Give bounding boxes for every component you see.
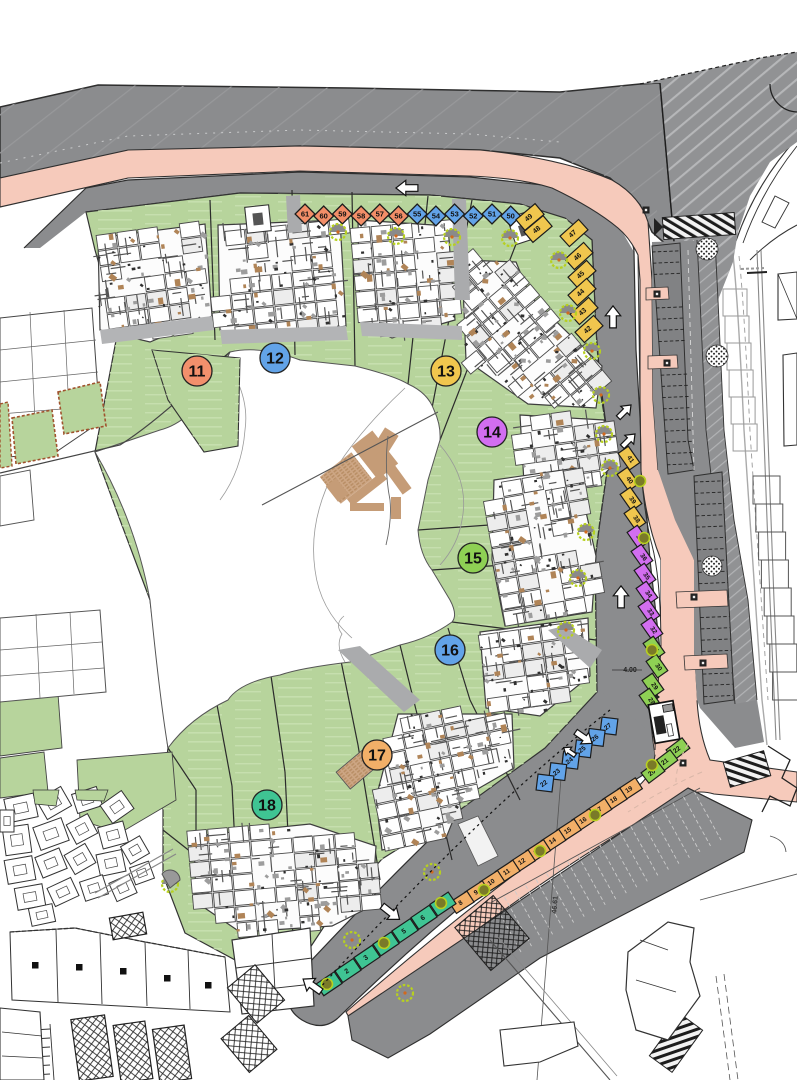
svg-text:14: 14 (483, 425, 501, 442)
svg-text:15: 15 (464, 551, 482, 568)
svg-text:56: 56 (394, 212, 402, 221)
svg-text:51: 51 (488, 210, 496, 219)
svg-text:17: 17 (368, 748, 386, 765)
svg-text:58: 58 (357, 212, 365, 221)
svg-text:57: 57 (376, 210, 384, 219)
svg-text:59: 59 (338, 210, 346, 219)
svg-text:53: 53 (450, 210, 458, 219)
svg-text:52: 52 (469, 212, 477, 221)
svg-text:4.00: 4.00 (623, 667, 637, 674)
svg-text:60: 60 (320, 212, 328, 221)
svg-text:12: 12 (266, 351, 284, 368)
svg-text:13: 13 (437, 364, 455, 381)
svg-text:55: 55 (413, 210, 421, 219)
svg-text:16: 16 (441, 643, 459, 660)
svg-text:54: 54 (432, 212, 441, 221)
svg-text:61: 61 (301, 210, 309, 219)
svg-text:11: 11 (189, 364, 206, 381)
svg-text:50: 50 (507, 212, 515, 221)
svg-text:18: 18 (258, 798, 276, 815)
